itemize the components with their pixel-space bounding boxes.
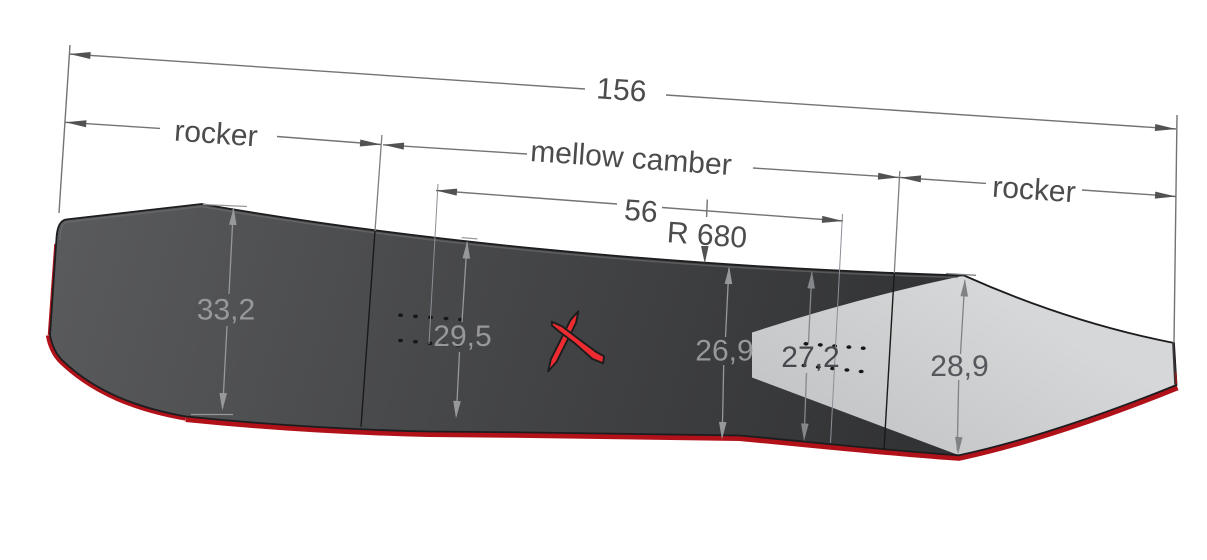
svg-text:29,5: 29,5 bbox=[433, 320, 491, 353]
svg-text:28,9: 28,9 bbox=[930, 350, 988, 383]
svg-text:56: 56 bbox=[623, 194, 659, 229]
svg-text:mellow camber: mellow camber bbox=[529, 135, 733, 182]
svg-text:rocker: rocker bbox=[991, 171, 1076, 210]
svg-text:27,2: 27,2 bbox=[781, 341, 839, 374]
svg-text:33,2: 33,2 bbox=[197, 294, 255, 327]
svg-text:26,9: 26,9 bbox=[695, 335, 753, 368]
svg-text:rocker: rocker bbox=[173, 115, 259, 154]
svg-text:R 680: R 680 bbox=[666, 216, 748, 255]
svg-text:156: 156 bbox=[595, 72, 647, 108]
